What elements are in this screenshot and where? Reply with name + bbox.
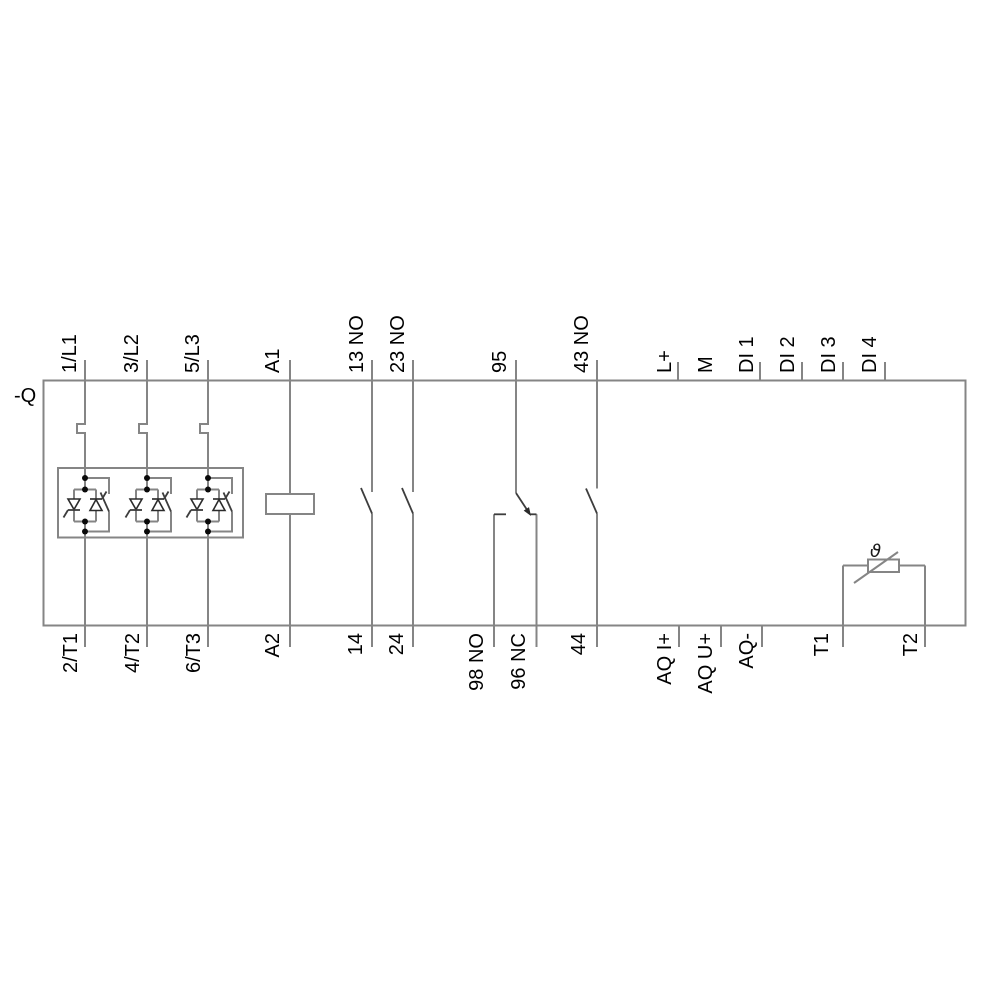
top-terminal-label-m: M: [695, 356, 717, 373]
bottom-terminal-label-t1: T1: [811, 633, 833, 656]
device-enclosure-outline: [44, 381, 966, 626]
thyristor-module-phase3: [187, 475, 233, 535]
changeover-blade-95: [516, 493, 528, 511]
bottom-terminal-label-96nc: 96 NC: [508, 633, 530, 690]
theta-symbol: ϑ: [870, 541, 881, 562]
top-terminal-label-di3: DI 3: [818, 336, 840, 373]
top-terminal-label-3l2: 3/L2: [121, 334, 143, 373]
top-terminal-label-23no: 23 NO: [387, 315, 409, 373]
bottom-terminal-label-24: 24: [386, 633, 408, 655]
top-terminal-label-di2: DI 2: [777, 336, 799, 373]
changeover-blade-arrowhead: [524, 507, 531, 516]
top-terminal-label-13no: 13 NO: [346, 315, 368, 373]
bottom-terminal-label-a2: A2: [262, 633, 284, 657]
top-terminal-label-di4: DI 4: [859, 336, 881, 373]
bottom-terminal-label-6t3: 6/T3: [183, 633, 205, 673]
thyristor-module-phase1: [64, 475, 110, 535]
aux-contact-13-14-blade: [361, 488, 372, 514]
bottom-terminal-label-aq-minus: AQ-: [736, 633, 758, 669]
bottom-terminal-label-44: 44: [568, 633, 590, 655]
top-terminal-label-95: 95: [489, 351, 511, 373]
bottom-terminal-label-98no: 98 NO: [466, 633, 488, 691]
aux-contact-43-44-blade: [586, 489, 597, 514]
bottom-terminal-label-t2: T2: [900, 633, 922, 656]
bottom-terminal-label-2t1: 2/T1: [60, 633, 82, 673]
top-terminal-label-l-plus: L+: [654, 350, 676, 373]
thyristor-module-phase2: [126, 475, 172, 535]
top-terminal-label-a1: A1: [262, 349, 284, 373]
bottom-terminal-label-aq-i: AQ I+: [654, 633, 676, 685]
top-terminal-label-1l1: 1/L1: [59, 334, 81, 373]
top-terminal-label-di1: DI 1: [736, 336, 758, 373]
device-designation-label: -Q: [14, 385, 36, 407]
aux-contact-23-24-blade: [402, 488, 413, 514]
soft-starter-wiring-diagram: ϑ -Q 1/L1 3/L2 5/L3 A1 13 NO 23 NO 95 43…: [0, 0, 1000, 1000]
coil-symbol: [266, 494, 314, 514]
circuit-diagram-canvas: ϑ -Q 1/L1 3/L2 5/L3 A1 13 NO 23 NO 95 43…: [0, 0, 1000, 1000]
top-terminal-label-5l3: 5/L3: [182, 334, 204, 373]
bottom-terminal-label-aq-u: AQ U+: [695, 633, 717, 694]
top-terminal-label-43no: 43 NO: [571, 315, 593, 373]
bottom-terminal-label-14: 14: [345, 633, 367, 655]
bottom-terminal-label-4t2: 4/T2: [122, 633, 144, 673]
